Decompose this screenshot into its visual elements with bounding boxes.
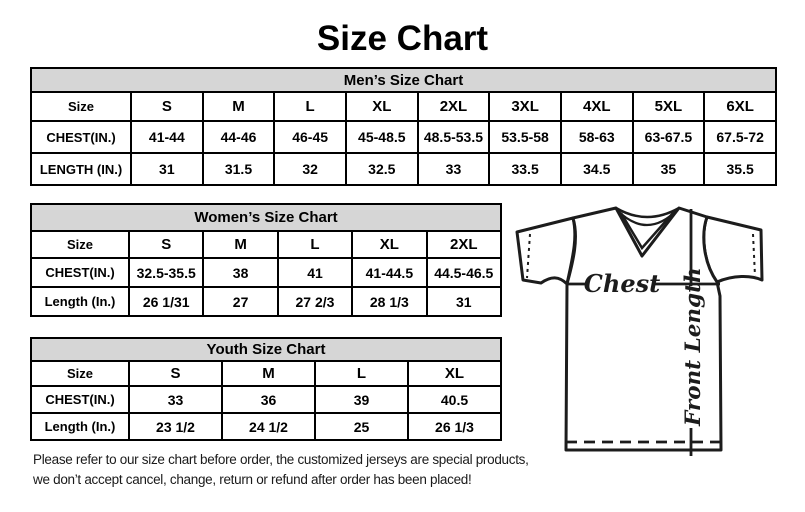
measurement-value: 33 [418, 153, 490, 185]
size-header-label: Size [31, 361, 129, 386]
measurement-value: 31 [427, 287, 501, 316]
measurement-value: 31.5 [203, 153, 275, 185]
mens-size-table: SizeSMLXL2XL3XL4XL5XL6XLCHEST(IN.)41-444… [30, 91, 777, 186]
size-column-header: 6XL [704, 92, 776, 121]
size-column-header: 3XL [489, 92, 561, 121]
measurement-value: 40.5 [408, 386, 501, 413]
size-column-header: M [203, 231, 277, 258]
size-table: SizeSMLXLCHEST(IN.)33363940.5Length (In.… [30, 360, 502, 441]
size-column-header: S [129, 231, 203, 258]
measurement-value: 53.5-58 [489, 121, 561, 153]
measurement-value: 27 [203, 287, 277, 316]
measurement-value: 32.5-35.5 [129, 258, 203, 287]
size-chart-page: Size Chart Men’s Size Chart SizeSMLXL2XL… [0, 0, 805, 512]
measurement-value: 63-67.5 [633, 121, 705, 153]
row-label: CHEST(IN.) [31, 258, 129, 287]
row-label: LENGTH (IN.) [31, 153, 131, 185]
measurement-value: 35 [633, 153, 705, 185]
front-length-label: Front Length [681, 267, 706, 427]
left-sleeve [517, 218, 575, 284]
youth-size-table: SizeSMLXLCHEST(IN.)33363940.5Length (In.… [30, 360, 502, 441]
size-column-header: 2XL [418, 92, 490, 121]
measurement-value: 36 [222, 386, 315, 413]
measurement-value: 39 [315, 386, 408, 413]
measurement-value: 26 1/31 [129, 287, 203, 316]
measurement-value: 27 2/3 [278, 287, 352, 316]
measurement-value: 35.5 [704, 153, 776, 185]
measurement-value: 41 [278, 258, 352, 287]
size-column-header: S [129, 361, 222, 386]
measurement-value: 34.5 [561, 153, 633, 185]
measurement-row: CHEST(IN.)32.5-35.5384141-44.544.5-46.5 [31, 258, 501, 287]
row-label: Length (In.) [31, 287, 129, 316]
tshirt-measurement-diagram: Chest Front Length [511, 196, 803, 462]
size-header-label: Size [31, 231, 129, 258]
size-header-row: SizeSMLXL2XL [31, 231, 501, 258]
measurement-value: 32 [274, 153, 346, 185]
womens-chart-title: Women’s Size Chart [30, 203, 502, 232]
measurement-value: 33 [129, 386, 222, 413]
womens-size-chart-section: Women’s Size Chart SizeSMLXL2XLCHEST(IN.… [30, 203, 502, 317]
size-column-header: 5XL [633, 92, 705, 121]
page-title: Size Chart [0, 19, 805, 59]
size-column-header: 4XL [561, 92, 633, 121]
size-column-header: XL [408, 361, 501, 386]
measurement-row: Length (In.)23 1/224 1/22526 1/3 [31, 413, 501, 440]
size-column-header: XL [352, 231, 426, 258]
measurement-row: CHEST(IN.)41-4444-4646-4545-48.548.5-53.… [31, 121, 776, 153]
size-column-header: 2XL [427, 231, 501, 258]
size-table: SizeSMLXL2XLCHEST(IN.)32.5-35.5384141-44… [30, 230, 502, 317]
measurement-value: 58-63 [561, 121, 633, 153]
measurement-value: 26 1/3 [408, 413, 501, 440]
size-column-header: S [131, 92, 203, 121]
measurement-value: 32.5 [346, 153, 418, 185]
measurement-value: 23 1/2 [129, 413, 222, 440]
measurement-value: 44-46 [203, 121, 275, 153]
row-label: CHEST(IN.) [31, 121, 131, 153]
measurement-value: 44.5-46.5 [427, 258, 501, 287]
measurement-row: Length (In.)26 1/312727 2/328 1/331 [31, 287, 501, 316]
womens-size-table: SizeSMLXL2XLCHEST(IN.)32.5-35.5384141-44… [30, 230, 502, 317]
measurement-value: 31 [131, 153, 203, 185]
measurement-value: 67.5-72 [704, 121, 776, 153]
order-policy-line-1: Please refer to our size chart before or… [33, 450, 573, 470]
mens-chart-title: Men’s Size Chart [30, 67, 777, 93]
measurement-value: 46-45 [274, 121, 346, 153]
size-header-label: Size [31, 92, 131, 121]
size-header-row: SizeSMLXL2XL3XL4XL5XL6XL [31, 92, 776, 121]
tshirt-diagram-svg: Chest Front Length [511, 196, 803, 462]
order-policy-note: Please refer to our size chart before or… [33, 450, 573, 490]
size-column-header: L [274, 92, 346, 121]
row-label: CHEST(IN.) [31, 386, 129, 413]
size-column-header: M [203, 92, 275, 121]
measurement-value: 28 1/3 [352, 287, 426, 316]
size-column-header: XL [346, 92, 418, 121]
measurement-value: 48.5-53.5 [418, 121, 490, 153]
measurement-row: LENGTH (IN.)3131.53232.53333.534.53535.5 [31, 153, 776, 185]
measurement-value: 41-44.5 [352, 258, 426, 287]
measurement-value: 24 1/2 [222, 413, 315, 440]
mens-size-chart-section: Men’s Size Chart SizeSMLXL2XL3XL4XL5XL6X… [30, 67, 777, 186]
size-column-header: L [315, 361, 408, 386]
chest-label: Chest [584, 269, 660, 298]
measurement-value: 38 [203, 258, 277, 287]
size-column-header: L [278, 231, 352, 258]
measurement-value: 45-48.5 [346, 121, 418, 153]
size-column-header: M [222, 361, 315, 386]
measurement-value: 25 [315, 413, 408, 440]
youth-chart-title: Youth Size Chart [30, 337, 502, 362]
size-header-row: SizeSMLXL [31, 361, 501, 386]
measurement-value: 33.5 [489, 153, 561, 185]
measurement-row: CHEST(IN.)33363940.5 [31, 386, 501, 413]
size-table: SizeSMLXL2XL3XL4XL5XL6XLCHEST(IN.)41-444… [30, 91, 777, 186]
order-policy-line-2: we don’t accept cancel, change, return o… [33, 470, 573, 490]
measurement-value: 41-44 [131, 121, 203, 153]
row-label: Length (In.) [31, 413, 129, 440]
youth-size-chart-section: Youth Size Chart SizeSMLXLCHEST(IN.)3336… [30, 337, 502, 441]
